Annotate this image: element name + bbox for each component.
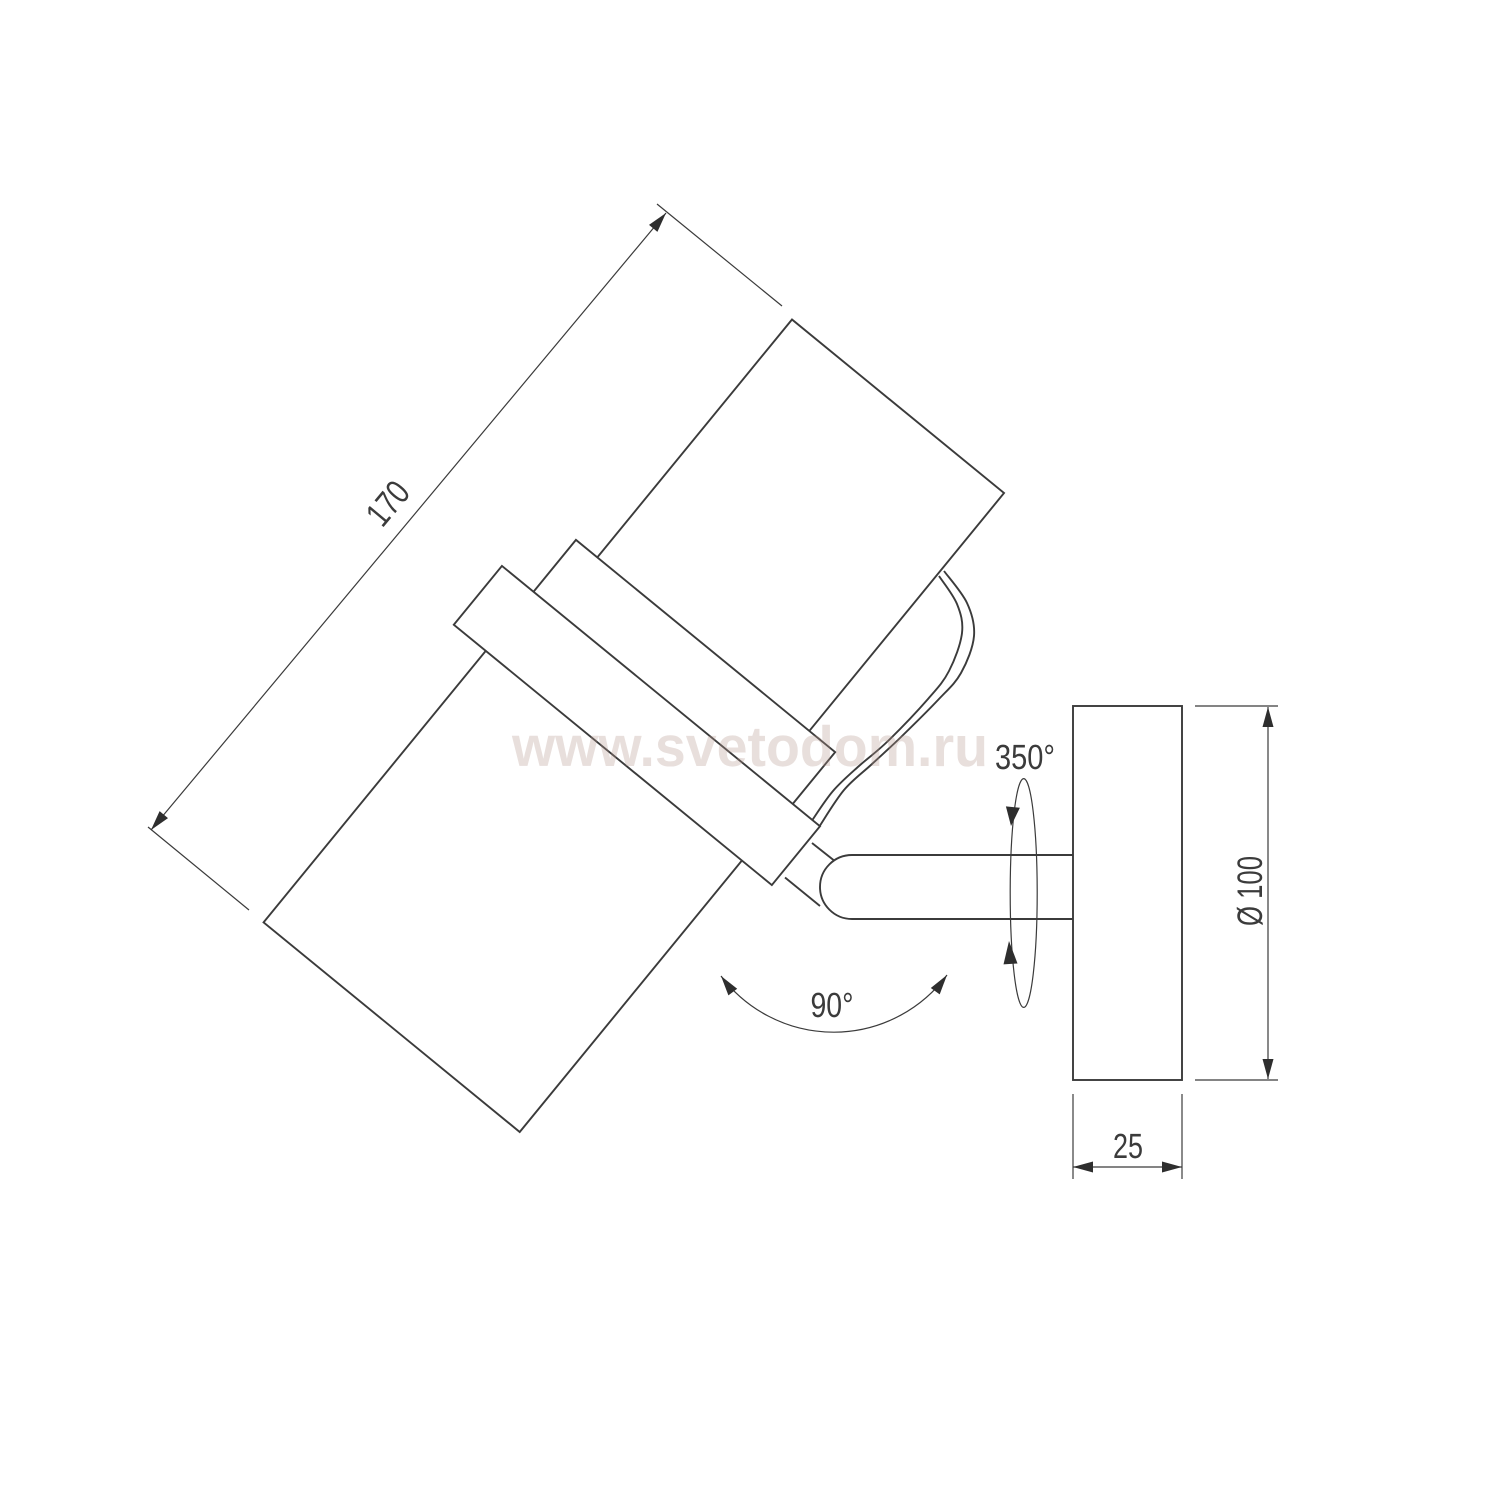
svg-text:25: 25: [1113, 1127, 1143, 1166]
svg-text:90°: 90°: [810, 986, 853, 1025]
svg-text:Ø 100: Ø 100: [1231, 856, 1270, 926]
svg-text:www.svetodom.ru: www.svetodom.ru: [511, 715, 988, 779]
svg-text:350°: 350°: [995, 738, 1055, 777]
